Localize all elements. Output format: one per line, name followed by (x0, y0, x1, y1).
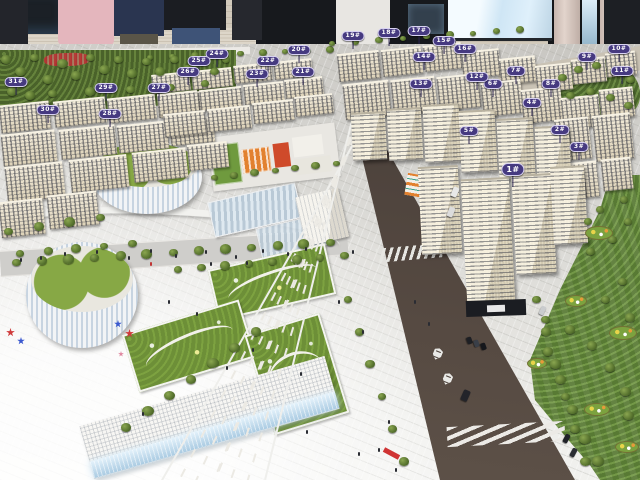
tree (174, 266, 182, 273)
tree (247, 244, 256, 252)
building-sign-label: 18# (378, 28, 401, 38)
residential-building (163, 110, 207, 137)
tree (128, 240, 137, 248)
building-sign-label: 16# (454, 44, 477, 54)
tree (596, 206, 604, 213)
tree (64, 217, 75, 226)
tree (57, 59, 68, 68)
building-sign: 28# (99, 100, 122, 127)
tree (292, 255, 302, 264)
residential-tower (550, 165, 588, 245)
showroom-photo: 1#2#3#4#5#6#7#8#9#10#11#12#13#14#15#16#1… (0, 0, 640, 480)
building-sign: 15# (433, 27, 456, 54)
building-sign-pole (423, 62, 424, 70)
visitor-pink-jacket (58, 0, 114, 46)
tree (127, 69, 137, 78)
building-sign-pole (216, 59, 217, 67)
tree (121, 423, 131, 432)
pedestrian (306, 430, 308, 434)
building-sign-label: 12# (466, 72, 489, 82)
tree (96, 214, 105, 222)
pedestrian (246, 261, 248, 265)
tree (90, 254, 99, 262)
building-sign-pole (560, 135, 561, 143)
building-sign: 21# (292, 58, 315, 85)
building-sign-pole (476, 82, 477, 90)
building-sign: 12# (466, 63, 489, 90)
building-sign-pole (420, 89, 421, 97)
flower-bed (609, 326, 637, 340)
pedestrian (20, 258, 22, 262)
tree (316, 254, 324, 261)
building-sign: 17# (408, 17, 431, 44)
flower-bed (585, 226, 613, 240)
residential-tower (423, 103, 462, 163)
building-sign: 13# (410, 70, 433, 97)
pedestrian (64, 252, 66, 256)
tree (532, 296, 541, 304)
tree (605, 363, 615, 372)
tower-entrance (466, 299, 527, 317)
tree (1, 55, 11, 64)
tree (388, 425, 397, 433)
tree (229, 343, 240, 352)
visitor-navy (114, 0, 164, 36)
building-sign-pole (47, 115, 48, 123)
residential-building (337, 50, 382, 82)
pedestrian (305, 247, 307, 251)
pedestrian (378, 448, 380, 452)
building-sign: 16# (454, 35, 477, 62)
tree (333, 161, 340, 167)
tree (194, 246, 204, 255)
residential-tower (418, 165, 463, 255)
building-sign-pole (621, 76, 622, 84)
building-sign-pole (516, 76, 517, 84)
residential-building (0, 129, 57, 166)
building-sign: 23# (246, 60, 269, 87)
residential-building (68, 154, 129, 193)
tree (587, 341, 597, 350)
building-sign-pole (579, 152, 580, 160)
building-sign: 9# (578, 43, 597, 70)
tree (37, 256, 47, 265)
pedestrian (150, 249, 152, 253)
pedestrian (287, 252, 289, 256)
tree (326, 46, 334, 53)
building-sign-label: 2# (551, 125, 570, 135)
pedestrian (395, 468, 397, 472)
pedestrian (210, 262, 212, 266)
residential-tower (461, 177, 515, 303)
tree (116, 251, 126, 260)
building-sign-label: 17# (408, 26, 431, 36)
tree (86, 54, 95, 62)
tree (237, 51, 244, 57)
tree (606, 94, 615, 102)
pedestrian (414, 300, 416, 304)
pedestrian (196, 312, 198, 316)
tree (114, 56, 123, 64)
pedestrian (235, 255, 237, 259)
building-sign-pole (352, 41, 353, 49)
building-sign: 4# (523, 89, 542, 116)
building-sign-pole (469, 136, 470, 144)
building-sign-pole (158, 93, 159, 101)
building-sign: 31# (5, 68, 28, 95)
building-sign: 30# (37, 96, 60, 123)
building-sign-pole (532, 108, 533, 116)
building-sign-pole (187, 77, 188, 85)
building-sign: 3# (570, 133, 589, 160)
residential-building (132, 147, 189, 182)
tree (625, 313, 635, 322)
building-sign-pole (388, 38, 389, 46)
school-red-building (272, 142, 291, 168)
building-sign: 18# (378, 19, 401, 46)
building-sign: 26# (177, 58, 200, 85)
building-sign-label: 10# (608, 44, 631, 54)
building-sign-label: 20# (288, 45, 311, 55)
tree (30, 54, 39, 62)
building-sign-label: 3# (570, 142, 589, 152)
tree (71, 244, 81, 253)
tree (63, 254, 74, 263)
building-sign: 29# (95, 74, 118, 101)
tree (211, 175, 218, 181)
residential-building (252, 99, 295, 124)
tree (164, 391, 175, 400)
visitor-black-jacket (164, 0, 226, 30)
building-sign: 7# (507, 57, 526, 84)
tree (44, 247, 53, 255)
pedestrian (128, 256, 130, 260)
building-sign-label: 7# (507, 66, 526, 76)
tree (541, 327, 551, 336)
pedestrian (252, 348, 254, 352)
tree (4, 228, 13, 236)
tree (16, 250, 24, 257)
tree (618, 278, 627, 286)
tree (344, 296, 352, 303)
building-sign-label: 4# (523, 98, 542, 108)
building-sign-label: 13# (410, 79, 433, 89)
tree (586, 248, 595, 256)
tree (99, 65, 110, 74)
residential-building (600, 157, 633, 192)
tree (586, 88, 595, 96)
building-sign-label: 31# (5, 77, 28, 87)
pedestrian (428, 322, 430, 326)
tree (85, 87, 95, 96)
tree (272, 168, 279, 174)
pedestrian (40, 256, 42, 260)
building-sign: 27# (148, 74, 171, 101)
residential-building (59, 124, 118, 160)
pedestrian (150, 262, 152, 266)
building-sign-label: 5# (460, 126, 479, 136)
tree (565, 325, 575, 334)
residential-building (117, 120, 170, 153)
tree (567, 405, 578, 414)
building-sign-pole (443, 46, 444, 54)
residential-tower (511, 173, 556, 275)
tree (550, 359, 561, 368)
pedestrian (352, 250, 354, 254)
building-sign-pole (109, 119, 110, 127)
tree (601, 296, 610, 304)
building-sign-pole (493, 89, 494, 97)
building-sign: 2# (551, 116, 570, 143)
tree (273, 241, 283, 250)
pedestrian (226, 366, 228, 370)
tree (142, 58, 151, 66)
tree (251, 327, 261, 336)
building-sign-label: 21# (292, 67, 315, 77)
pedestrian (262, 249, 264, 253)
flower-bed (584, 403, 610, 416)
tree (624, 218, 632, 225)
tree (210, 68, 219, 76)
building-sign-pole (418, 36, 419, 44)
tree (541, 316, 550, 324)
pedestrian (358, 452, 360, 456)
tree (207, 358, 219, 368)
building-sign-label: 1# (501, 163, 524, 176)
tree (516, 26, 524, 33)
building-sign: 5# (460, 117, 479, 144)
pedestrian (388, 420, 390, 424)
tree (620, 196, 628, 203)
building-sign-label: 8# (542, 79, 561, 89)
visitor-dark-mid (232, 0, 262, 40)
flower-bed (527, 358, 547, 369)
tree (186, 375, 196, 384)
pedestrian (142, 412, 144, 416)
tree (543, 347, 553, 356)
tree (584, 218, 592, 225)
tree (399, 457, 409, 466)
pedestrian (338, 300, 340, 304)
building-sign-label: 30# (37, 105, 60, 115)
tree (220, 244, 231, 253)
building-sign-label: 9# (578, 52, 597, 62)
building-sign-pole (587, 62, 588, 70)
residential-building (187, 141, 229, 171)
tree (34, 222, 44, 231)
tree (624, 102, 633, 110)
tree (326, 239, 335, 247)
building-sign: 1# (501, 157, 524, 187)
tree (555, 375, 566, 384)
building-sign-label: 28# (99, 109, 122, 119)
building-sign-label: 29# (95, 83, 118, 93)
building-sign: 8# (542, 70, 561, 97)
building-sign-label: 19# (342, 31, 365, 41)
pedestrian (175, 254, 177, 258)
flower-bed (615, 441, 639, 453)
tree (561, 393, 570, 401)
tree (340, 252, 349, 260)
building-sign-pole (15, 87, 16, 95)
residential-building (207, 105, 252, 132)
residential-tower (351, 111, 387, 161)
tree (580, 457, 591, 466)
residential-tower (387, 107, 424, 161)
school-white-building (292, 134, 324, 158)
building-sign-pole (302, 77, 303, 85)
building-sign-pole (551, 89, 552, 97)
pedestrian (205, 250, 207, 254)
building-sign-label: 27# (148, 83, 171, 93)
pedestrian (300, 372, 302, 376)
tree (71, 71, 81, 80)
building-sign: 11# (611, 57, 634, 84)
building-sign-pole (256, 79, 257, 87)
building-sign-label: 23# (246, 69, 269, 79)
tree (566, 92, 575, 100)
tree (126, 86, 135, 94)
tree (43, 75, 53, 84)
tree (201, 80, 209, 87)
building-sign-label: 15# (433, 36, 456, 46)
pedestrian (362, 330, 364, 334)
tree (298, 239, 309, 248)
tree (378, 393, 386, 400)
building-sign-pole (105, 93, 106, 101)
tree (220, 261, 230, 270)
pedestrian (96, 250, 98, 254)
tree (623, 411, 634, 420)
residential-building (294, 93, 334, 117)
tree (620, 387, 631, 396)
building-sign-label: 11# (611, 66, 634, 76)
building-sign-pole (513, 176, 514, 187)
building-sign: 19# (342, 22, 365, 49)
flower-bed (565, 295, 587, 307)
building-sign-label: 26# (177, 67, 200, 77)
building-sign-pole (464, 54, 465, 62)
residential-building (592, 112, 635, 162)
pedestrian (168, 300, 170, 304)
